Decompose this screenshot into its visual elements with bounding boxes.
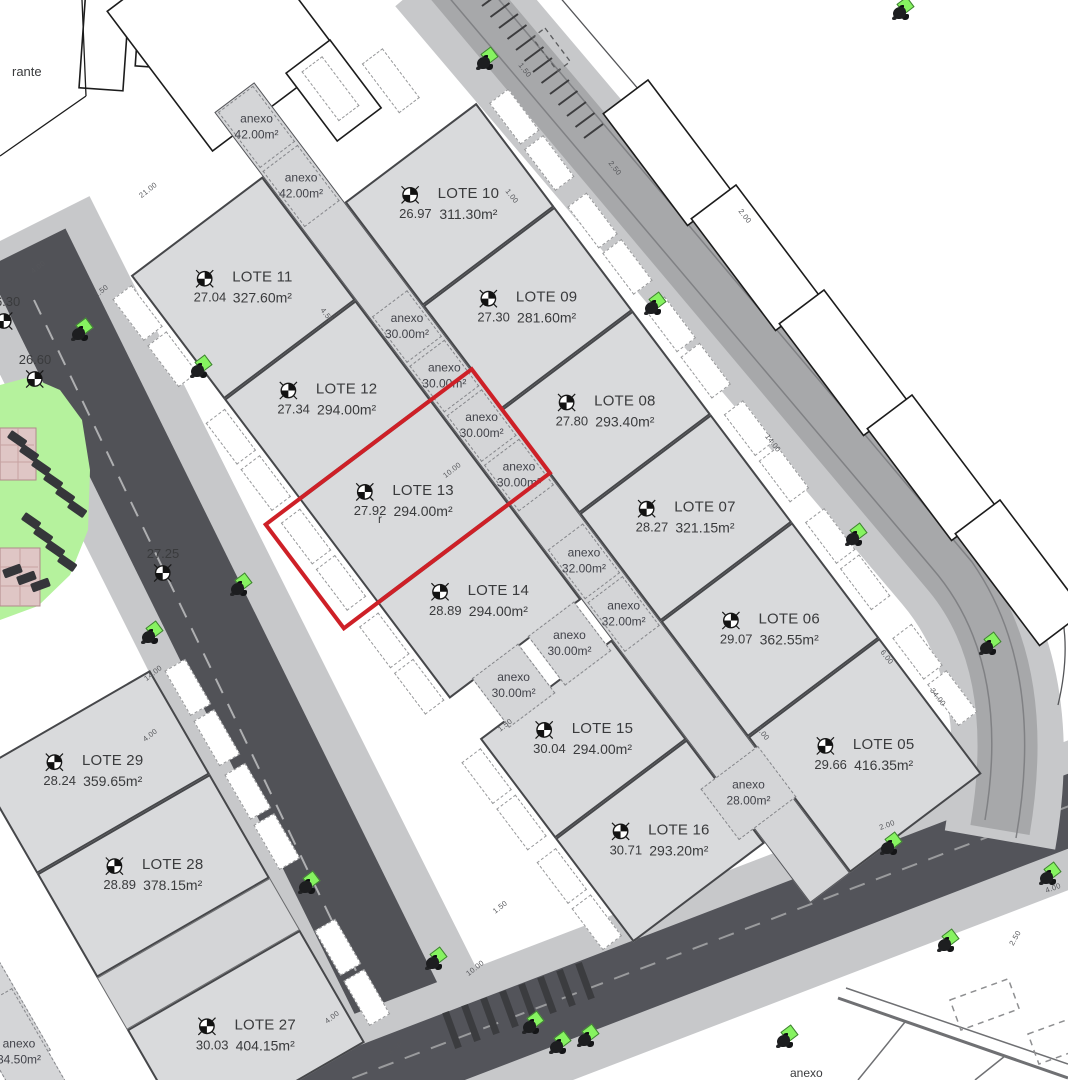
tree-icon xyxy=(768,1025,798,1055)
lot-name: LOTE 28 xyxy=(142,856,203,873)
lot-area: 362.55m² xyxy=(760,631,819,647)
elevation-value: 26.30 xyxy=(0,294,20,309)
benchmark-icon xyxy=(43,751,65,773)
tree-icon xyxy=(182,355,212,385)
lot-area: 378.15m² xyxy=(143,877,202,893)
anexo-label: anexo30.00m² xyxy=(385,311,429,342)
elevation-value: 27.80 xyxy=(556,414,589,428)
elevation-value: 27.04 xyxy=(194,290,227,304)
elevation-value: 29.66 xyxy=(815,757,848,771)
elevation-value: 28.89 xyxy=(103,878,136,892)
lot-name: LOTE 08 xyxy=(595,392,656,409)
anexo-label: anexo32.00m² xyxy=(562,546,606,577)
lot-label: 27.30LOTE 09281.60m² xyxy=(478,287,578,329)
lot-area: 321.15m² xyxy=(675,519,734,535)
lot-label: 30.04LOTE 15294.00m² xyxy=(533,718,633,760)
lot-name: LOTE 07 xyxy=(674,498,735,515)
lot-area: 327.60m² xyxy=(233,289,292,305)
benchmark-icon xyxy=(24,368,46,390)
lot-area: 416.35m² xyxy=(854,756,913,772)
lot-name: LOTE 10 xyxy=(438,185,499,202)
elevation-value: 28.24 xyxy=(43,774,76,788)
lot-name: LOTE 27 xyxy=(234,1016,295,1033)
benchmark-icon xyxy=(478,287,500,309)
tree-icon xyxy=(872,832,902,862)
lot-area: 404.15m² xyxy=(236,1037,295,1053)
street-elevation-marker: 26.60 xyxy=(19,352,52,390)
lot-label: 30.03LOTE 27404.15m² xyxy=(196,1015,296,1057)
lot-area: 293.40m² xyxy=(596,413,655,429)
lot-label: 26.97LOTE 10311.30m² xyxy=(400,184,500,226)
tree-icon xyxy=(1031,862,1061,892)
lot-name: LOTE 12 xyxy=(316,380,377,397)
anexo-label: anexo34.50m² xyxy=(0,1037,41,1068)
lot-area: 294.00m² xyxy=(317,401,376,417)
elevation-value: 27.34 xyxy=(277,401,310,415)
benchmark-icon xyxy=(720,609,742,631)
elevation-value: 26.60 xyxy=(19,352,52,367)
lot-label: 27.34LOTE 12294.00m² xyxy=(277,379,377,421)
lot-area: 359.65m² xyxy=(83,773,142,789)
yard-box xyxy=(301,56,359,121)
lot-name: LOTE 14 xyxy=(468,581,529,598)
lot-label: 28.27LOTE 07321.15m² xyxy=(636,497,736,539)
benchmark-icon xyxy=(103,855,125,877)
tree-icon xyxy=(929,929,959,959)
lot-area: 293.20m² xyxy=(650,842,709,858)
benchmark-icon xyxy=(636,497,658,519)
lot-area: 311.30m² xyxy=(440,205,498,221)
street-elevation-marker: 27.25 xyxy=(147,546,180,584)
benchmark-icon xyxy=(152,562,174,584)
anexo-label: anexo42.00m² xyxy=(279,170,323,201)
elevation-value: 30.03 xyxy=(196,1038,229,1052)
elevation-value: 28.89 xyxy=(429,603,462,617)
tree-icon xyxy=(222,573,252,603)
lot-area: 281.60m² xyxy=(517,309,576,325)
anexo-label: anexo30.00m² xyxy=(548,628,592,659)
elevation-value: 27.25 xyxy=(147,546,180,561)
tree-icon xyxy=(417,947,447,977)
misc-text: r xyxy=(378,512,382,526)
tree-icon xyxy=(884,0,914,27)
lot-name: LOTE 16 xyxy=(649,821,710,838)
tree-icon xyxy=(63,318,93,348)
tree-icon xyxy=(133,621,163,651)
lot-label: 29.07LOTE 06362.55m² xyxy=(720,609,820,651)
tree-icon xyxy=(541,1031,571,1061)
misc-text: anexo xyxy=(790,1066,823,1080)
misc-text: rante xyxy=(12,64,42,79)
elevation-value: 29.07 xyxy=(720,631,753,645)
benchmark-icon xyxy=(556,391,578,413)
anexo-label: anexo42.00m² xyxy=(235,111,279,142)
elevation-value: 27.30 xyxy=(478,310,511,324)
benchmark-icon xyxy=(610,820,632,842)
benchmark-icon xyxy=(429,580,451,602)
lot-label: 30.71LOTE 16293.20m² xyxy=(610,820,710,862)
elevation-value: 28.27 xyxy=(636,520,669,534)
benchmark-icon xyxy=(0,310,15,332)
lot-label: 28.24LOTE 29359.65m² xyxy=(43,751,143,793)
benchmark-icon xyxy=(400,184,422,206)
anexo-label: anexo28.00m² xyxy=(726,777,770,808)
anexo-label: anexo32.00m² xyxy=(602,598,646,629)
lot-label: 27.80LOTE 08293.40m² xyxy=(556,391,656,433)
benchmark-icon xyxy=(196,1015,218,1037)
benchmark-icon xyxy=(194,267,216,289)
tree-icon xyxy=(837,523,867,553)
tree-icon xyxy=(636,292,666,322)
tree-icon xyxy=(468,47,498,77)
tree-icon xyxy=(569,1024,599,1054)
tree-icon xyxy=(971,632,1001,662)
lot-name: LOTE 09 xyxy=(516,288,577,305)
lot-label: 28.89LOTE 14294.00m² xyxy=(429,580,529,622)
anexo-label: anexo30.00m² xyxy=(492,670,536,701)
lot-name: LOTE 11 xyxy=(232,268,292,285)
lot-name: LOTE 05 xyxy=(853,736,914,753)
lot-name: LOTE 06 xyxy=(759,610,820,627)
lot-name: LOTE 15 xyxy=(572,719,633,736)
lot-label: 29.66LOTE 05416.35m² xyxy=(815,735,915,777)
street-elevation-marker: 26.30 xyxy=(0,294,20,332)
elevation-value: 26.97 xyxy=(400,206,433,220)
benchmark-icon xyxy=(815,735,837,757)
lot-name: LOTE 29 xyxy=(82,752,143,769)
lot-label: 27.04LOTE 11327.60m² xyxy=(194,267,293,309)
tree-icon xyxy=(290,871,320,901)
lot-area: 294.00m² xyxy=(573,740,632,756)
tree-icon xyxy=(514,1011,544,1041)
elevation-value: 30.71 xyxy=(610,843,643,857)
lot-label: 28.89LOTE 28378.15m² xyxy=(103,855,203,897)
lot-area: 294.00m² xyxy=(469,602,528,618)
benchmark-icon xyxy=(277,379,299,401)
site-plan-canvas: 26.97LOTE 10311.30m²27.30LOTE 09281.60m²… xyxy=(0,0,1068,1080)
yard-box xyxy=(362,48,420,113)
elevation-value: 30.04 xyxy=(533,741,566,755)
benchmark-icon xyxy=(533,718,555,740)
